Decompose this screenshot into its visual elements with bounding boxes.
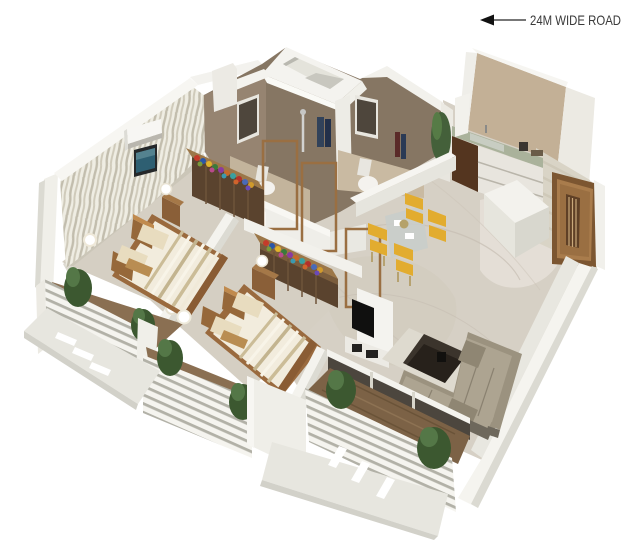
svg-text:24M WIDE ROAD: 24M WIDE ROAD — [530, 12, 621, 28]
